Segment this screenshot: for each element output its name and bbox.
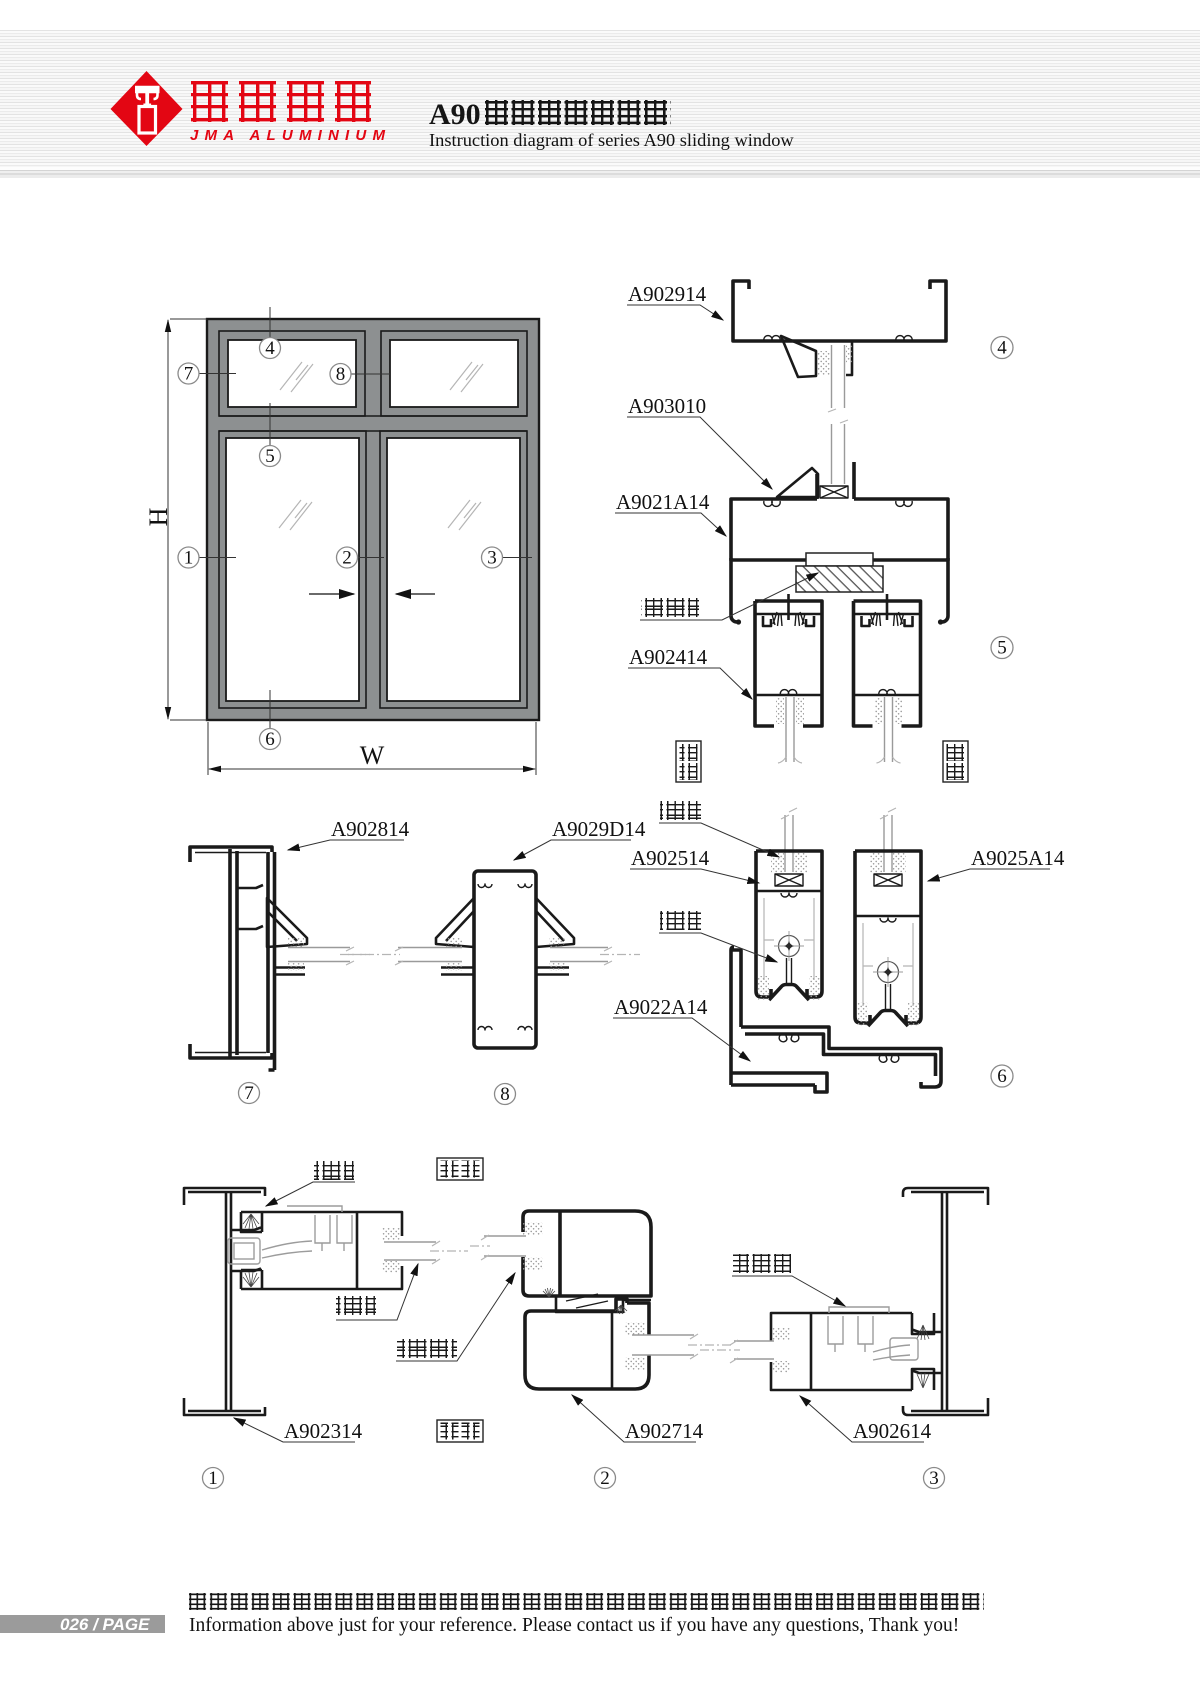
svg-text:2: 2 [600, 1468, 610, 1489]
svg-text:A902714: A902714 [625, 1419, 704, 1443]
svg-text:2: 2 [342, 548, 352, 569]
svg-text:Information above just for you: Information above just for your referenc… [189, 1615, 959, 1636]
svg-text:A9021A14: A9021A14 [616, 490, 710, 514]
svg-text:A9025A14: A9025A14 [971, 846, 1065, 870]
svg-text:6: 6 [997, 1066, 1007, 1087]
svg-text:A90: A90 [429, 98, 481, 131]
svg-text:A902914: A902914 [628, 282, 707, 306]
svg-text:5: 5 [265, 446, 275, 467]
svg-text:Instruction diagram of series: Instruction diagram of series A90 slidin… [429, 130, 794, 150]
svg-text:A902414: A902414 [629, 645, 708, 669]
svg-text:A902614: A902614 [853, 1419, 932, 1443]
svg-text:4: 4 [265, 338, 275, 359]
svg-text:A902314: A902314 [284, 1419, 363, 1443]
svg-text:7: 7 [184, 364, 194, 385]
svg-text:A903010: A903010 [628, 394, 706, 418]
svg-text:8: 8 [336, 364, 346, 385]
svg-text:6: 6 [265, 729, 275, 750]
svg-text:W: W [360, 741, 385, 770]
svg-text:A9022A14: A9022A14 [614, 995, 708, 1019]
svg-text:1: 1 [184, 548, 194, 569]
svg-text:H: H [144, 507, 173, 526]
svg-text:A902514: A902514 [631, 846, 710, 870]
svg-text:3: 3 [929, 1468, 939, 1489]
svg-text:A902814: A902814 [331, 817, 410, 841]
svg-text:3: 3 [487, 548, 497, 569]
svg-text:026 / PAGE: 026 / PAGE [60, 1615, 150, 1634]
svg-text:A9029D14: A9029D14 [552, 817, 646, 841]
svg-text:1: 1 [208, 1468, 218, 1489]
svg-text:5: 5 [997, 638, 1007, 659]
svg-text:4: 4 [997, 338, 1007, 359]
svg-text:7: 7 [244, 1083, 254, 1104]
svg-text:JMA ALUMINIUM: JMA ALUMINIUM [190, 127, 391, 144]
svg-text:8: 8 [500, 1084, 510, 1105]
